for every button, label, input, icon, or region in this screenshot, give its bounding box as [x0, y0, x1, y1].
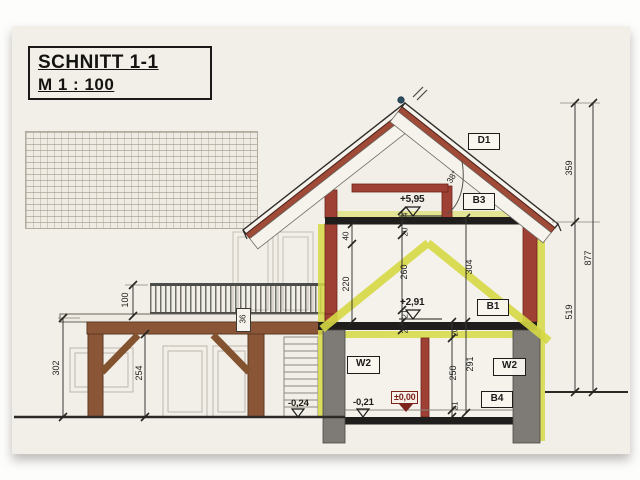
eave-fascia-right — [558, 224, 561, 231]
dim-20-upper: 20 — [401, 228, 410, 237]
title-block: SCHNITT 1-1 M 1 : 100 — [28, 46, 212, 100]
ground-slab-band — [345, 417, 513, 425]
carport-post-left — [88, 334, 103, 417]
level-m024: -0,24 — [288, 398, 309, 409]
dim-519: 519 — [564, 304, 574, 319]
carport-beam — [87, 322, 325, 334]
level-291: +2,91 — [400, 297, 424, 308]
drawing-scale: M 1 : 100 — [38, 74, 202, 95]
highlight-wall-left-ground — [318, 330, 323, 417]
dim-24: 24 — [401, 213, 410, 222]
concrete-wall-right — [513, 330, 540, 443]
dim-291: 291 — [465, 356, 475, 371]
highlight-under-floor-band — [345, 331, 513, 338]
label-wall-w2-left: W2 — [347, 356, 380, 374]
ground-partition-wall — [421, 338, 429, 417]
dim-302: 302 — [51, 360, 61, 375]
label-roof-d1: D1 — [468, 133, 500, 150]
label-ceiling-b3: B3 — [463, 193, 495, 210]
label-floor-b1: B1 — [477, 299, 509, 316]
highlight-wall-right-ground — [540, 330, 545, 441]
upper-post-right — [523, 224, 537, 322]
dim-36-box: 36 — [236, 308, 251, 332]
label-slab-b4: B4 — [481, 391, 513, 408]
drawing-title: SCHNITT 1-1 — [38, 52, 202, 74]
ridge-point-marker — [398, 97, 404, 103]
label-wall-w2-right: W2 — [493, 358, 526, 376]
dim-20-band: 20 — [401, 325, 410, 334]
dim-254: 254 — [134, 365, 144, 380]
dim-250: 250 — [448, 365, 458, 380]
dim-21-ground: 21 — [451, 402, 460, 411]
dim-220: 220 — [341, 276, 351, 291]
upper-post-left — [325, 224, 337, 322]
dim-40: 40 — [342, 232, 351, 241]
carport-post-right — [248, 334, 264, 417]
balcony-deck — [60, 314, 325, 322]
photo-of-section-drawing: SCHNITT 1-1 M 1 : 100 D1 B3 B1 B4 W2 W2 … — [0, 0, 640, 480]
collar-beam — [352, 184, 448, 192]
carport-structure — [60, 314, 325, 417]
dim-21-upper: 21 — [401, 310, 410, 319]
level-000: ±0,00 — [391, 391, 418, 404]
dim-304: 304 — [464, 259, 474, 274]
highlight-wall-left-upper — [318, 224, 325, 330]
dim-100: 100 — [120, 292, 130, 307]
concrete-wall-left — [323, 330, 345, 443]
level-m021: -0,21 — [353, 397, 374, 408]
dim-20-ground: 20 — [451, 328, 460, 337]
dim-359: 359 — [564, 160, 574, 175]
carport-brace-right — [213, 335, 249, 372]
dim-877: 877 — [583, 250, 593, 265]
dim-260: 260 — [399, 264, 409, 279]
dim-36: 36 — [239, 315, 248, 324]
carport-brace-left — [102, 335, 138, 372]
level-595: +5,95 — [400, 194, 424, 205]
